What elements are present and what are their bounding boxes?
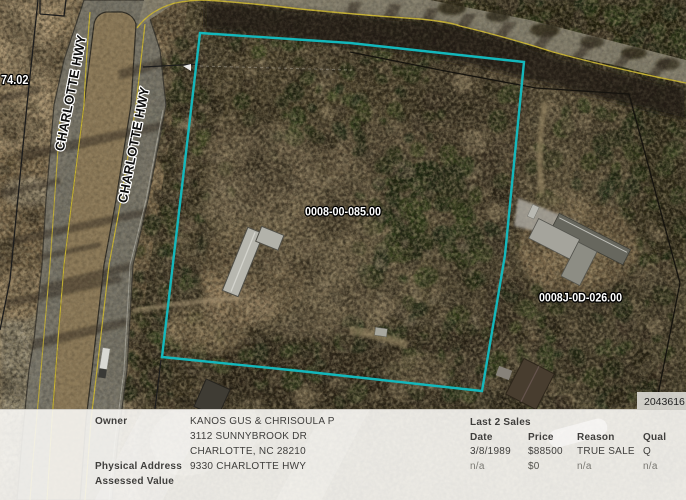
svg-text:0008J-0D-026.00: 0008J-0D-026.00 [539,291,622,305]
svg-text:0008-00-085.00: 0008-00-085.00 [305,205,381,219]
svg-text:2043616: 2043616 [644,396,685,408]
svg-text:74.02: 74.02 [1,72,29,87]
